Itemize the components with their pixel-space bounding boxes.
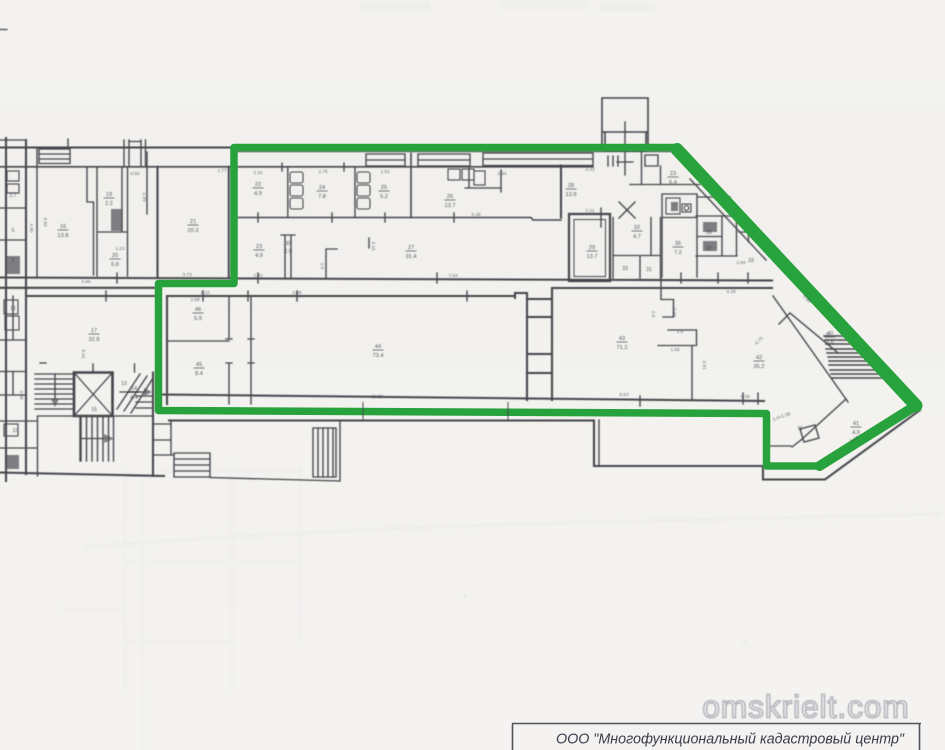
- svg-text:2.32: 2.32: [253, 170, 263, 175]
- svg-text:2.2: 2.2: [105, 201, 113, 207]
- svg-text:31: 31: [646, 267, 652, 273]
- svg-text:13.8: 13.8: [58, 233, 69, 239]
- svg-text:13.7: 13.7: [587, 254, 598, 260]
- svg-text:23: 23: [670, 171, 676, 177]
- svg-text:4.90: 4.90: [29, 223, 34, 233]
- svg-text:30: 30: [285, 241, 291, 247]
- svg-text:42: 42: [756, 355, 762, 361]
- svg-text:2.84: 2.84: [736, 260, 746, 265]
- svg-text:11.80: 11.80: [371, 394, 383, 399]
- svg-text:13.9: 13.9: [566, 192, 577, 198]
- svg-text:8.41: 8.41: [81, 349, 86, 359]
- svg-text:17: 17: [91, 328, 97, 334]
- svg-text:2.98: 2.98: [190, 297, 200, 302]
- svg-text:2.76: 2.76: [318, 169, 328, 174]
- svg-text:1.52: 1.52: [380, 169, 390, 174]
- svg-text:71.2: 71.2: [617, 345, 628, 351]
- svg-text:41: 41: [853, 421, 859, 427]
- svg-text:5: 5: [12, 228, 15, 234]
- svg-text:4.7: 4.7: [633, 234, 641, 240]
- svg-text:28: 28: [568, 183, 574, 189]
- svg-text:4.43: 4.43: [585, 167, 595, 172]
- svg-text:М: М: [798, 426, 802, 432]
- svg-text:7.54: 7.54: [448, 273, 458, 278]
- svg-text:1.10: 1.10: [200, 290, 210, 295]
- svg-text:3.73: 3.73: [182, 272, 192, 277]
- svg-text:2.92: 2.92: [253, 273, 263, 278]
- svg-text:4.93: 4.93: [43, 217, 48, 227]
- svg-text:2.7: 2.7: [10, 193, 17, 199]
- svg-text:4.39: 4.39: [740, 394, 750, 399]
- svg-text:1.45: 1.45: [142, 192, 147, 202]
- svg-text:19: 19: [106, 192, 112, 198]
- svg-text:33: 33: [622, 266, 628, 272]
- svg-text:7: 7: [12, 258, 15, 264]
- svg-text:24: 24: [319, 185, 325, 191]
- svg-text:5.2: 5.2: [380, 194, 388, 200]
- svg-text:36: 36: [706, 230, 712, 236]
- svg-text:4.4: 4.4: [130, 395, 138, 401]
- svg-text:32: 32: [634, 225, 640, 231]
- svg-text:2.9: 2.9: [285, 249, 292, 255]
- svg-text:4.38: 4.38: [726, 289, 736, 294]
- svg-text:11: 11: [825, 333, 830, 339]
- svg-text:35: 35: [675, 241, 681, 247]
- svg-text:21: 21: [190, 219, 196, 225]
- svg-text:12: 12: [10, 306, 16, 312]
- svg-text:32.8: 32.8: [89, 337, 100, 343]
- svg-text:1.77: 1.77: [217, 168, 227, 173]
- svg-text:6.63: 6.63: [619, 392, 629, 397]
- svg-text:2.20: 2.20: [672, 307, 677, 317]
- svg-text:1.6: 1.6: [677, 329, 684, 334]
- svg-text:22: 22: [255, 182, 261, 188]
- svg-text:43: 43: [619, 336, 625, 342]
- svg-text:11: 11: [12, 428, 17, 434]
- svg-text:1.6: 1.6: [320, 263, 325, 270]
- svg-text:33: 33: [748, 258, 754, 264]
- svg-text:ООО "Многофункциональный кадас: ООО "Многофункциональный кадастровый цен…: [556, 732, 905, 748]
- svg-text:2.98: 2.98: [292, 290, 302, 295]
- svg-text:5.48: 5.48: [471, 212, 481, 217]
- svg-text:35.2: 35.2: [754, 364, 765, 370]
- svg-text:37: 37: [706, 246, 712, 252]
- svg-text:16: 16: [60, 224, 66, 230]
- svg-text:26: 26: [447, 194, 453, 200]
- svg-text:29: 29: [589, 245, 595, 251]
- svg-text:7.2: 7.2: [674, 250, 682, 256]
- svg-text:45: 45: [196, 362, 202, 368]
- svg-text:6.8: 6.8: [111, 262, 119, 268]
- svg-text:4.9: 4.9: [254, 191, 262, 197]
- svg-text:5.6: 5.6: [826, 340, 834, 346]
- svg-text:8.4: 8.4: [195, 371, 203, 377]
- svg-text:3.41: 3.41: [702, 360, 707, 370]
- svg-text:2.21: 2.21: [585, 208, 595, 213]
- svg-text:2.38: 2.38: [19, 390, 24, 400]
- svg-text:27: 27: [408, 245, 414, 251]
- svg-text:13: 13: [121, 381, 127, 387]
- svg-text:1.9: 1.9: [651, 311, 656, 318]
- svg-text:25: 25: [381, 185, 387, 191]
- svg-text:1.23: 1.23: [115, 246, 125, 251]
- svg-text:23: 23: [256, 244, 262, 250]
- svg-text:2.84: 2.84: [497, 171, 507, 176]
- svg-text:5.4: 5.4: [669, 180, 677, 186]
- svg-text:5.96: 5.96: [81, 279, 91, 284]
- svg-text:13.7: 13.7: [445, 203, 456, 209]
- svg-text:46: 46: [195, 307, 201, 313]
- svg-text:omskrielt.com: omskrielt.com: [702, 689, 909, 725]
- svg-text:1.68: 1.68: [670, 347, 680, 352]
- svg-text:7.8: 7.8: [318, 194, 326, 200]
- svg-text:4.9: 4.9: [255, 253, 263, 259]
- svg-text:73.4: 73.4: [373, 353, 384, 359]
- svg-text:31.4: 31.4: [406, 254, 417, 260]
- svg-text:14: 14: [131, 386, 137, 392]
- svg-text:0.90: 0.90: [130, 171, 140, 176]
- svg-text:5.9: 5.9: [194, 316, 202, 322]
- svg-text:15: 15: [91, 407, 97, 413]
- svg-text:20.3: 20.3: [188, 228, 199, 234]
- svg-text:3.16: 3.16: [371, 241, 376, 251]
- svg-text:20: 20: [112, 253, 118, 259]
- svg-text:44: 44: [375, 344, 381, 350]
